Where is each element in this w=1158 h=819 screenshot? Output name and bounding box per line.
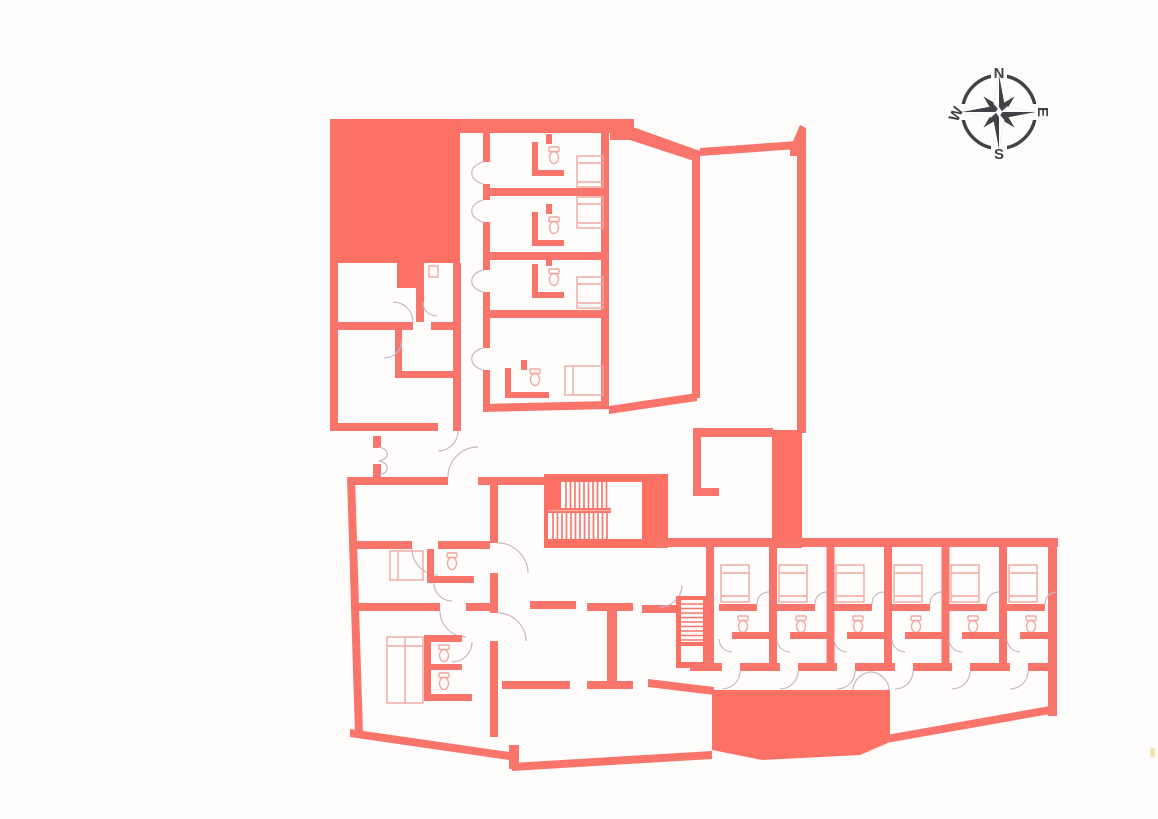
main-staircase [544, 474, 668, 548]
floor-plan: N E S W [0, 0, 1158, 819]
bathroom-pod [505, 360, 549, 398]
compass-rose: N E S W [946, 65, 1051, 163]
upper-left-rooms [332, 263, 458, 378]
corridor-wall [453, 263, 461, 431]
solid-zone [712, 690, 890, 760]
edge-tick [1150, 748, 1155, 757]
compass-east-label: E [1034, 107, 1051, 117]
central-corridor [502, 585, 714, 695]
lower-left-block [347, 477, 548, 737]
upper-guest-rooms [483, 133, 609, 412]
double-door [853, 672, 889, 690]
bedroom [387, 635, 472, 703]
floor-plan-canvas: N E S W [0, 0, 1158, 819]
bottom-outer-wall [350, 729, 712, 771]
link-corridor [373, 436, 478, 477]
compass-south-label: S [994, 146, 1004, 163]
compass-north-label: N [994, 65, 1005, 82]
right-wing [656, 538, 1058, 760]
service-stair [676, 596, 708, 668]
radiator-icon [429, 266, 438, 277]
solid-zone [330, 119, 460, 288]
bedroom [390, 549, 474, 601]
corridor-wall [490, 485, 498, 737]
bed-icon [565, 366, 603, 395]
